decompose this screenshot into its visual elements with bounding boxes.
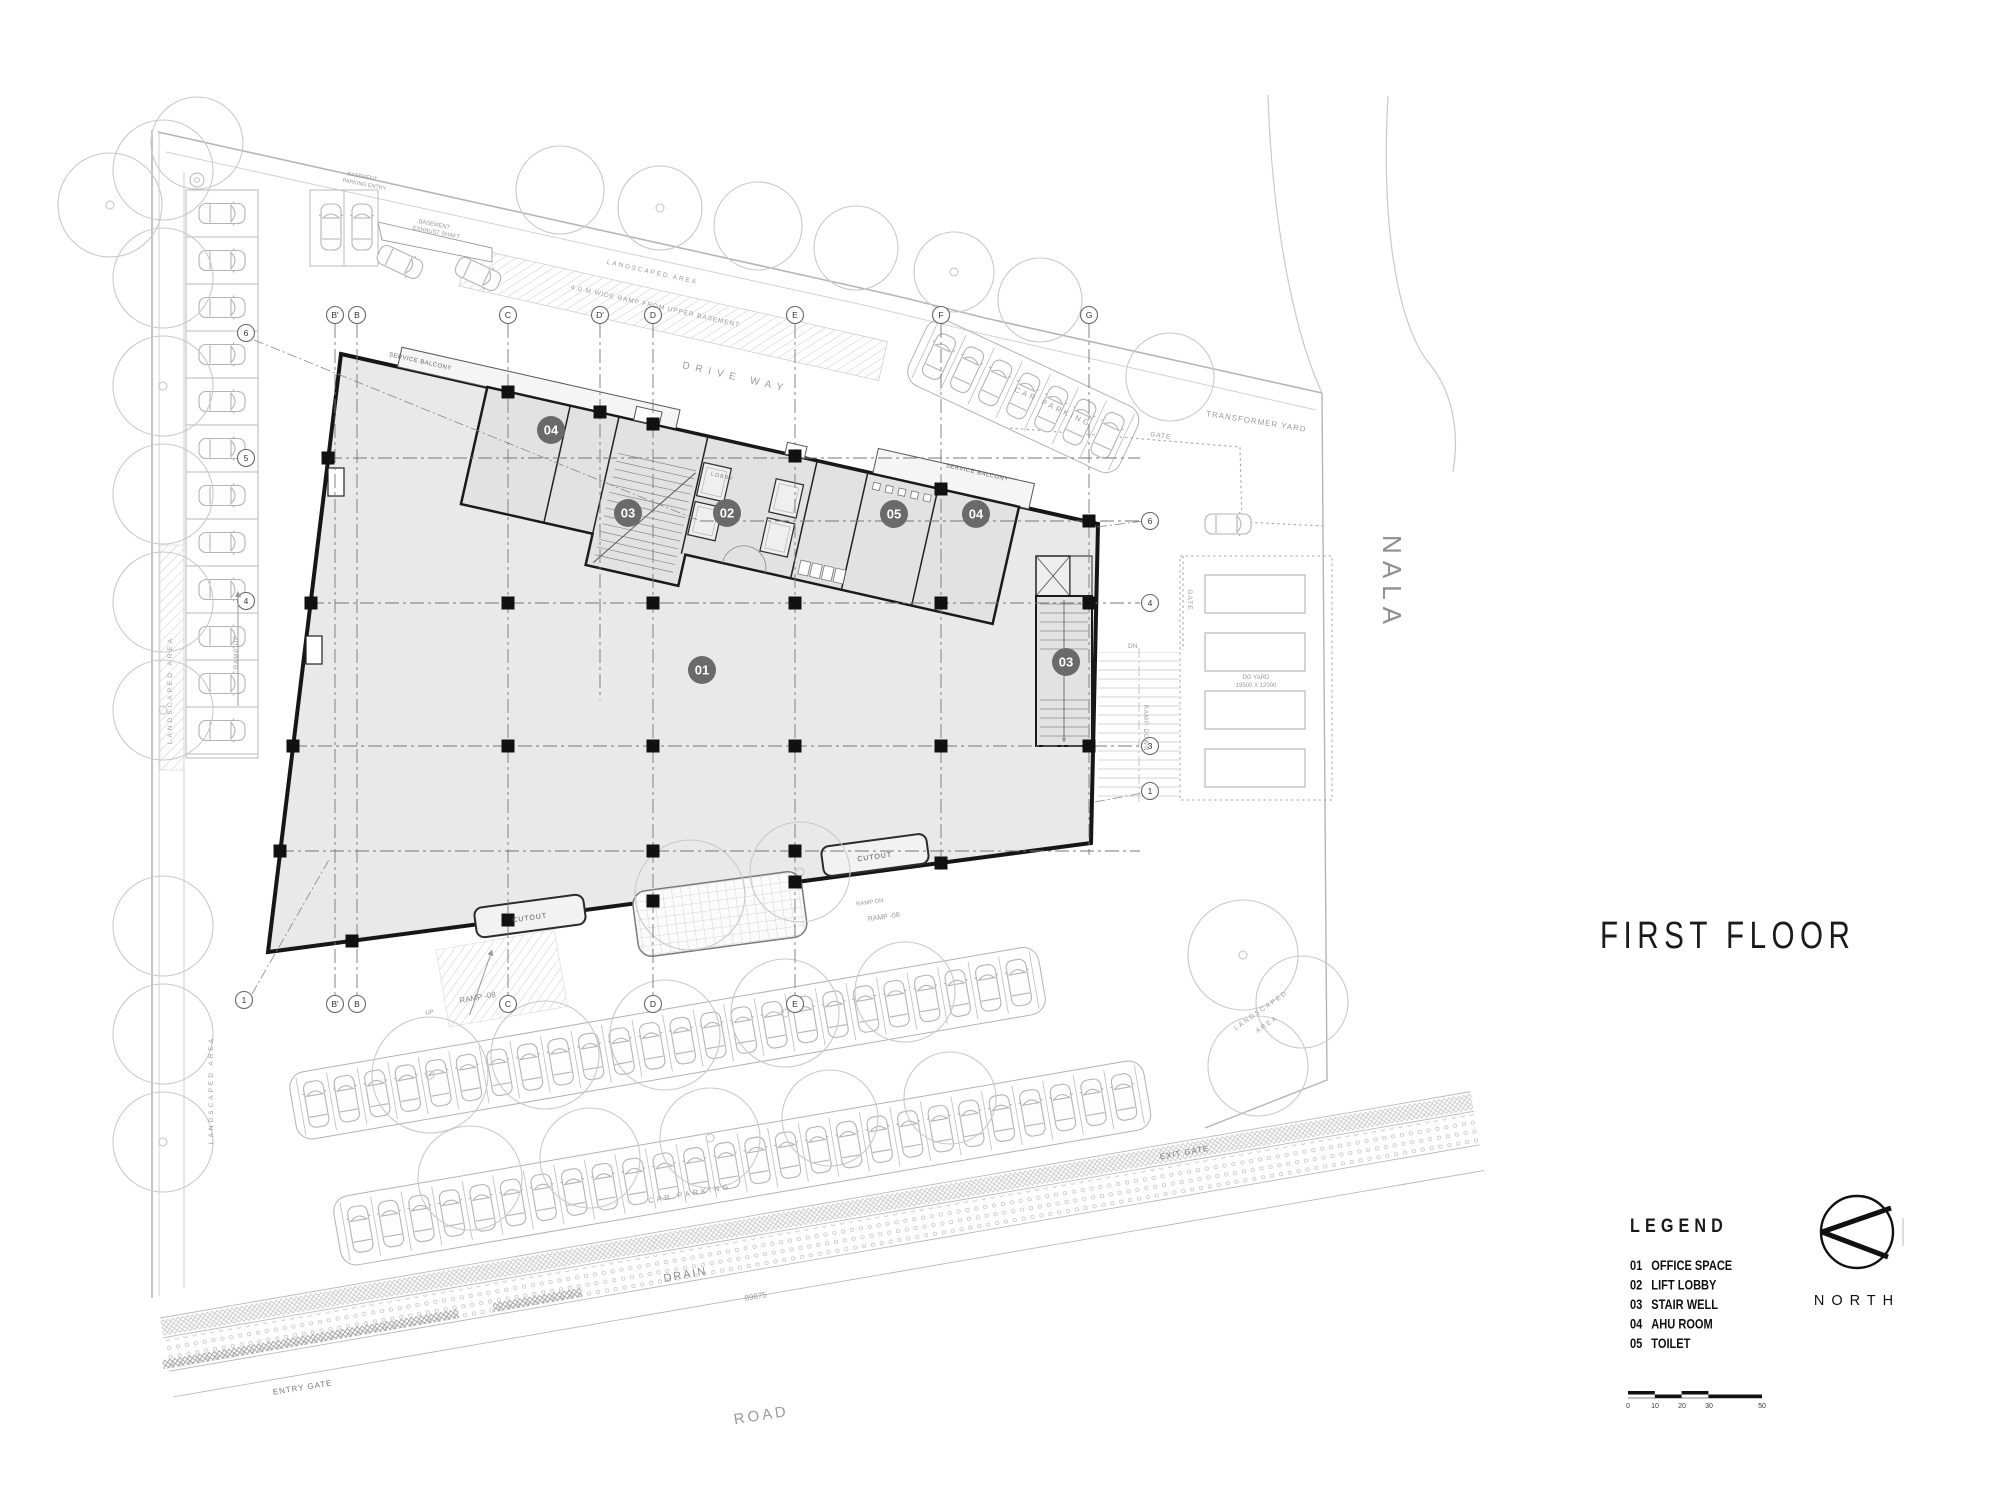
column (647, 895, 660, 908)
grid-bubble: G (1081, 307, 1098, 324)
svg-text:D: D (650, 999, 656, 1009)
svg-text:01: 01 (1630, 1258, 1642, 1273)
room-badge: 02 (713, 499, 741, 527)
column (789, 450, 802, 463)
svg-text:B': B' (331, 999, 339, 1009)
column (594, 406, 607, 419)
column (502, 597, 515, 610)
column (274, 845, 287, 858)
label-nala: NALA (1377, 535, 1407, 631)
label-ramp-up-side: RAMP UP (234, 635, 240, 669)
car (742, 1136, 773, 1185)
page-title: FIRST FLOOR (1600, 915, 1855, 957)
tree (58, 153, 162, 257)
legend-items: 01OFFICE SPACE02LIFT LOBBY03STAIR WELL04… (1630, 1258, 1732, 1351)
room-badge: 01 (688, 656, 716, 684)
svg-text:03: 03 (1059, 655, 1073, 670)
legend-title: LEGEND (1630, 1215, 1728, 1237)
column (1083, 597, 1096, 610)
scale-tick: 10 (1651, 1403, 1659, 1410)
car (589, 1162, 620, 1211)
tree-trunk (706, 1134, 714, 1142)
legend-item: 02LIFT LOBBY (1630, 1277, 1717, 1292)
grid-bubble: 1 (236, 992, 253, 1009)
tree (418, 1126, 522, 1230)
column (305, 597, 318, 610)
scale-ticks: 010203050 (1626, 1403, 1766, 1410)
car (514, 1042, 545, 1091)
grid-leader (1097, 521, 1143, 527)
svg-text:E: E (792, 999, 798, 1009)
svg-text:D: D (650, 310, 656, 320)
label-landscaped-left: LANDSCAPED AREA (167, 636, 174, 744)
legend-item: 05TOILET (1630, 1336, 1691, 1351)
column (789, 740, 802, 753)
svg-text:03: 03 (621, 506, 635, 521)
svg-text:02: 02 (720, 506, 734, 521)
svg-text:B: B (354, 999, 360, 1009)
grid-bubble: B (349, 307, 366, 324)
car (300, 1079, 331, 1128)
car (331, 1074, 362, 1123)
car (942, 968, 973, 1017)
column (935, 597, 948, 610)
grid-bubble: 1 (1142, 783, 1159, 800)
grid-bubble: E (787, 996, 804, 1013)
scale-tick: 50 (1758, 1403, 1766, 1410)
car (1047, 1083, 1078, 1132)
car (620, 1157, 651, 1206)
car (350, 204, 374, 250)
svg-text:LIFT LOBBY: LIFT LOBBY (1651, 1277, 1717, 1292)
svg-text:02: 02 (1630, 1277, 1642, 1292)
label-dg-yard-2: 19500 X 12000 (1236, 683, 1277, 689)
car (956, 1099, 987, 1148)
legend-item: 04AHU ROOM (1630, 1316, 1713, 1331)
car (558, 1167, 589, 1216)
svg-text:E: E (792, 310, 798, 320)
label-dimension: 89875 (744, 1290, 768, 1303)
car (575, 1032, 606, 1081)
car (698, 1011, 729, 1060)
label-entry-gate: ENTRY GATE (272, 1378, 333, 1396)
tree (113, 444, 213, 544)
left-ramp-08 (436, 930, 568, 1027)
svg-text:B: B (354, 310, 360, 320)
tree (113, 984, 213, 1084)
tree (618, 166, 702, 250)
grid-bubble: 4 (1142, 595, 1159, 612)
svg-text:6: 6 (1148, 516, 1153, 526)
room-badge: 05 (880, 500, 908, 528)
car (497, 1178, 528, 1227)
floor-plan-svg: B'BCD'DEFGB'BCDE65416431 04030205040103 … (0, 0, 2000, 1500)
car (199, 202, 245, 226)
scale-tick: 20 (1678, 1403, 1686, 1410)
scale-tick: 30 (1705, 1403, 1713, 1410)
tree (113, 120, 213, 220)
svg-text:4: 4 (1148, 598, 1153, 608)
car (467, 1183, 498, 1232)
north-arrow-icon (1822, 1208, 1891, 1257)
room-badge: 03 (1052, 648, 1080, 676)
column (647, 597, 660, 610)
car (423, 1058, 454, 1107)
title-block: FIRST FLOOR LEGEND 01OFFICE SPACE02LIFT … (1600, 915, 1903, 1410)
label-dg-yard-1: DG YARD (1243, 675, 1270, 681)
column (789, 876, 802, 889)
svg-text:1: 1 (1148, 786, 1153, 796)
column (935, 740, 948, 753)
car (362, 1069, 393, 1118)
svg-text:G: G (1086, 310, 1093, 320)
car (545, 1037, 576, 1086)
column (647, 418, 660, 431)
car (528, 1173, 559, 1222)
tree (113, 876, 213, 976)
column (502, 740, 515, 753)
label-dn-right: DN (1128, 643, 1138, 650)
grid-bubble: C (500, 996, 517, 1013)
tree-trunk (656, 204, 664, 212)
column (935, 857, 948, 870)
tree (660, 1088, 760, 1188)
svg-text:6: 6 (244, 328, 249, 338)
car (375, 1199, 406, 1248)
svg-text:TOILET: TOILET (1651, 1336, 1691, 1351)
car (911, 974, 942, 1023)
column (935, 483, 948, 496)
tree (714, 182, 802, 270)
car (925, 1104, 956, 1153)
parking-row (331, 1059, 1153, 1268)
legend-item: 03STAIR WELL (1630, 1297, 1718, 1312)
tree (914, 232, 994, 312)
svg-text:C: C (505, 310, 511, 320)
svg-text:01: 01 (695, 663, 709, 678)
tree (113, 228, 213, 328)
column (346, 935, 359, 948)
label-ramp-dn-mid: RAMP DN (856, 898, 884, 908)
floor-plan-sheet: B'BCD'DEFGB'BCDE65416431 04030205040103 … (0, 0, 2000, 1500)
label-ramp-up-left: UP (425, 1009, 434, 1016)
car (199, 484, 245, 508)
car (392, 1063, 423, 1112)
tree-trunk (106, 201, 114, 209)
car (199, 531, 245, 555)
grid-bubble: 6 (1142, 513, 1159, 530)
car (667, 1016, 698, 1065)
scale-tick: 0 (1626, 1403, 1630, 1410)
label-road: ROAD (733, 1403, 790, 1428)
svg-text:04: 04 (969, 507, 984, 522)
tree-trunk (159, 1138, 167, 1146)
svg-text:B': B' (331, 310, 339, 320)
car (1003, 958, 1034, 1007)
label-drive-way: DRIVE WAY (681, 360, 790, 395)
scale-bar: 010203050 (1626, 1391, 1766, 1410)
svg-text:STAIR WELL: STAIR WELL (1651, 1297, 1718, 1312)
car (199, 390, 245, 414)
column (647, 845, 660, 858)
svg-text:04: 04 (544, 423, 559, 438)
svg-text:05: 05 (887, 507, 901, 522)
right-ramp-down (1098, 648, 1180, 802)
column (789, 597, 802, 610)
svg-text:03: 03 (1630, 1297, 1642, 1312)
tree-trunk (159, 382, 167, 390)
car (199, 343, 245, 367)
building (268, 341, 1098, 958)
grid-bubble: B' (327, 307, 344, 324)
svg-text:05: 05 (1630, 1336, 1642, 1351)
column (789, 845, 802, 858)
grid-bubble: F (933, 307, 950, 324)
car (436, 1188, 467, 1237)
svg-text:F: F (938, 310, 943, 320)
car (803, 1125, 834, 1174)
svg-text:5: 5 (244, 453, 249, 463)
car (319, 204, 343, 250)
label-ramp-down-right: RAMP DOWN (1142, 705, 1148, 752)
car (406, 1194, 437, 1243)
tree (113, 336, 213, 436)
column (1083, 740, 1096, 753)
label-ramp-08-mid: RAMP -08 (867, 912, 900, 923)
legend-item: 01OFFICE SPACE (1630, 1258, 1732, 1273)
car (1017, 1088, 1048, 1137)
grid-bubble: C (500, 307, 517, 324)
car (1078, 1078, 1109, 1127)
tree (113, 1092, 213, 1192)
tree-trunk (950, 268, 958, 276)
car (453, 1053, 484, 1102)
room-badge: 04 (962, 500, 990, 528)
column (322, 452, 335, 465)
room-badge: 03 (614, 499, 642, 527)
tree-trunk (1239, 951, 1247, 959)
tree (814, 206, 898, 290)
tree (998, 258, 1082, 342)
svg-text:AHU ROOM: AHU ROOM (1651, 1316, 1712, 1331)
car (881, 979, 912, 1028)
svg-text:4: 4 (244, 596, 249, 606)
car (636, 1021, 667, 1070)
svg-text:D': D' (596, 310, 604, 320)
car (759, 1000, 790, 1049)
room-badge: 04 (537, 416, 565, 444)
column (1083, 515, 1096, 528)
car (1205, 512, 1251, 536)
car (1108, 1072, 1139, 1121)
column (287, 740, 300, 753)
north-arrow: NORTH (1814, 1196, 1903, 1309)
car (864, 1115, 895, 1164)
car (199, 296, 245, 320)
car (345, 1204, 376, 1253)
grid-bubble: B (349, 996, 366, 1013)
car (973, 963, 1004, 1012)
grid-bubble: E (787, 307, 804, 324)
grid-bubble: 4 (238, 593, 255, 610)
grid-bubble: B' (327, 996, 344, 1013)
svg-text:04: 04 (1630, 1316, 1642, 1331)
car (199, 719, 245, 743)
column (502, 386, 515, 399)
grid-bubble: 6 (238, 325, 255, 342)
label-gate-side: GATE (1186, 589, 1193, 610)
grid-bubble: D (645, 996, 662, 1013)
svg-text:C: C (505, 999, 511, 1009)
column (647, 740, 660, 753)
grid-bubble: D' (592, 307, 609, 324)
svg-text:OFFICE SPACE: OFFICE SPACE (1651, 1258, 1732, 1273)
label-transformer-yard: TRANSFORMER YARD (1206, 409, 1308, 434)
svg-text:1: 1 (242, 995, 247, 1005)
label-landscaped-lower-left: LANDSCAPED AREA (208, 1036, 215, 1144)
grid-bubble: 5 (238, 450, 255, 467)
tree (151, 97, 243, 189)
north-label: NORTH (1814, 1293, 1900, 1309)
